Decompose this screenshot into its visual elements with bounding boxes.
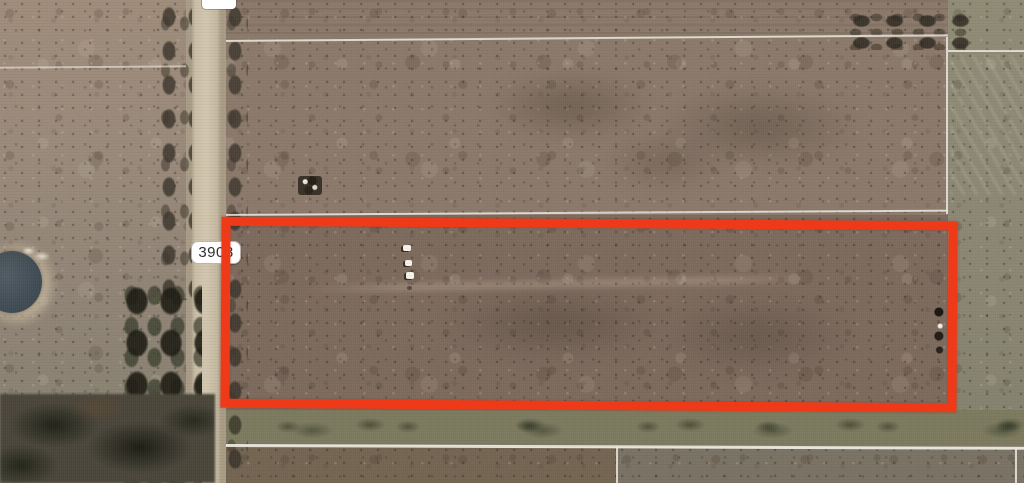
parcel-line-south-vertical-mid [616, 446, 618, 483]
east-field-streaks [950, 55, 1024, 195]
parcel-line-south-vertical-right [1015, 447, 1017, 483]
road-shield-icon [202, 0, 236, 9]
equipment-cluster [298, 176, 322, 195]
satellite-map-canvas[interactable]: 3908 [0, 0, 1024, 483]
north-parcel-dark-patches [430, 50, 900, 190]
south-fence-grass-strip [186, 410, 1024, 447]
field-south-east [617, 446, 1024, 483]
bare-earth-patch [20, 242, 54, 264]
tree-line-west-of-road [156, 0, 192, 300]
fence-line-objects [933, 306, 946, 356]
parcel-line-east-vertical [946, 37, 948, 214]
subject-parcel-red-outline [220, 217, 957, 412]
tree-canopy-bottom-left [0, 394, 215, 483]
brush-top-right [845, 10, 970, 50]
plow-rows-texture [226, 0, 950, 40]
parcel-line-east-horizontal [948, 50, 1024, 52]
